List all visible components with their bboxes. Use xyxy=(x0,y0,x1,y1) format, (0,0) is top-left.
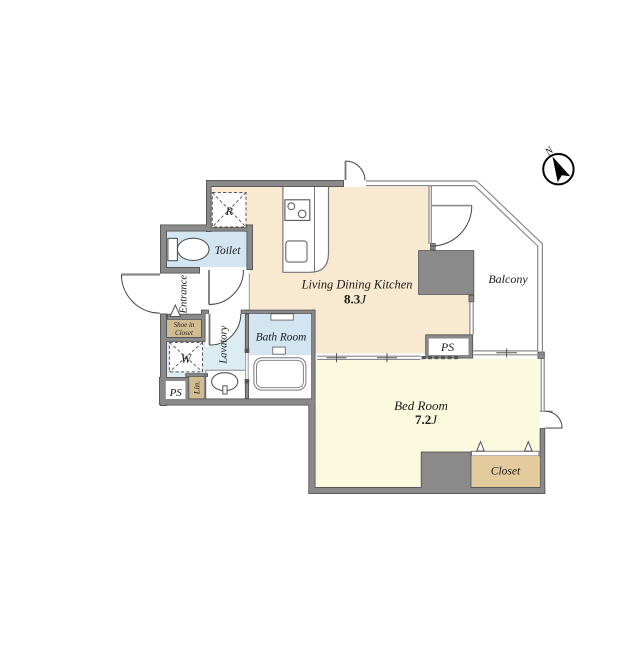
svg-text:Entrance: Entrance xyxy=(179,275,190,315)
svg-text:Lin.: Lin. xyxy=(191,381,201,395)
svg-text:Closet: Closet xyxy=(175,329,194,337)
svg-text:7.2J: 7.2J xyxy=(415,412,438,427)
svg-text:8.3J: 8.3J xyxy=(344,292,367,307)
svg-text:Bath Room: Bath Room xyxy=(256,332,307,344)
svg-text:Living Dining Kitchen: Living Dining Kitchen xyxy=(301,278,413,292)
svg-text:Closet: Closet xyxy=(491,466,521,478)
svg-text:PS: PS xyxy=(440,340,454,354)
svg-text:Balcony: Balcony xyxy=(488,272,528,286)
svg-text:W: W xyxy=(181,352,193,366)
svg-text:Bed Room: Bed Room xyxy=(394,398,448,413)
svg-text:Lavatory: Lavatory xyxy=(219,325,230,364)
svg-text:Shoe in: Shoe in xyxy=(174,321,195,329)
svg-text:R: R xyxy=(225,204,234,218)
svg-text:PS: PS xyxy=(169,387,183,399)
svg-text:Toilet: Toilet xyxy=(215,245,242,257)
